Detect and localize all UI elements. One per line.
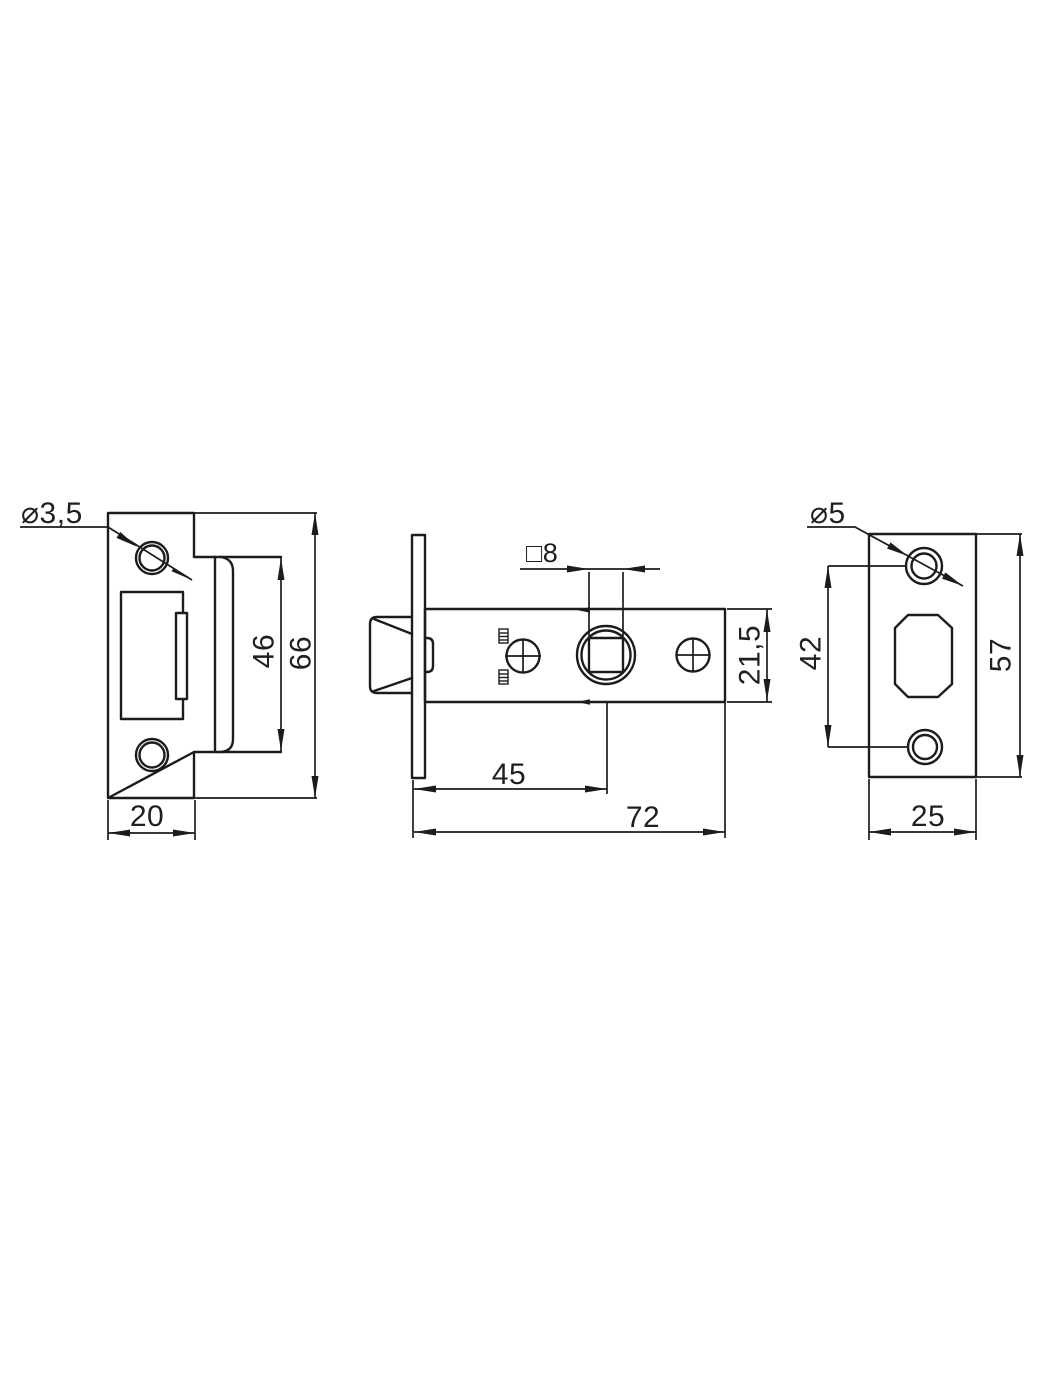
bolt-bevel-top	[374, 619, 412, 634]
faceplate-hole-bottom-inner	[913, 735, 937, 759]
arrow-left	[414, 786, 436, 793]
dim-label-42: 42	[795, 636, 828, 670]
latch-technical-drawing: ⌀3,5 46 66 20	[0, 0, 1050, 1400]
dim-label-hole-dia5: ⌀5	[810, 497, 846, 530]
arrow-left	[567, 566, 589, 573]
arrow-down	[278, 729, 285, 751]
arrow-up	[1017, 534, 1024, 556]
dim-label-46: 46	[248, 634, 281, 668]
arrow-right	[954, 829, 976, 836]
screw-boss-right	[677, 639, 710, 672]
latch-opening-tab	[176, 613, 187, 699]
arrow-up	[312, 513, 319, 535]
latch-body-side-view: □8 21,5 45 72	[370, 535, 772, 838]
dim-label-72: 72	[626, 801, 660, 834]
faceplate-hole-top-inner	[912, 554, 937, 579]
latch-bolt	[370, 617, 412, 693]
arrow-up	[825, 566, 832, 588]
arrow-up	[278, 558, 285, 580]
arrow-right	[173, 830, 195, 837]
spindle-outer-circle	[577, 626, 635, 684]
dim-label-20: 20	[130, 800, 164, 833]
dimension-25: 25	[869, 779, 976, 840]
dimension-21-5: 21,5	[727, 609, 772, 702]
dimension-46: 46	[248, 557, 285, 752]
spindle-square-hole	[589, 638, 623, 672]
dim-label-25: 25	[911, 800, 945, 833]
dim-label-45: 45	[492, 758, 526, 791]
strike-plate-front-view: ⌀3,5 46 66 20	[20, 497, 319, 840]
arrow-left	[869, 829, 891, 836]
dimension-72: 72	[413, 702, 725, 838]
arrow-down	[1017, 755, 1024, 777]
dimension-45: 45	[414, 702, 607, 794]
lip-bend-curve	[221, 557, 233, 752]
strike-screw-hole-bottom-inner	[140, 743, 165, 768]
arrow-right	[703, 829, 725, 836]
leader-end-arrow	[942, 572, 963, 586]
arrow-down	[312, 776, 319, 798]
faceplate-front-view: ⌀5 42 57 25	[795, 497, 1024, 840]
dim-label-66: 66	[285, 636, 318, 670]
strike-screw-hole-bottom-outer	[136, 739, 168, 771]
drawing-canvas: ⌀3,5 46 66 20	[0, 0, 1050, 1400]
spring-detail-top	[499, 629, 508, 643]
dim-label-57: 57	[985, 638, 1018, 672]
spindle-hub	[577, 626, 635, 684]
dimension-hole-dia-5: ⌀5	[807, 497, 963, 586]
arrow-down	[825, 725, 832, 747]
arrow-left	[414, 829, 436, 836]
spring-detail-bottom	[499, 670, 508, 684]
leader-end-arrow	[172, 568, 192, 580]
screw-boss-left	[505, 640, 541, 673]
bolt-bevel-bottom	[374, 678, 412, 691]
dimension-57: 57	[976, 534, 1024, 777]
latch-opening	[121, 592, 183, 719]
dimension-square-8: □8	[520, 538, 660, 636]
faceplate-outline	[869, 534, 976, 777]
arrow-right	[585, 786, 607, 793]
edge-mark-bottom	[577, 699, 590, 705]
dim-label-21-5: 21,5	[734, 625, 767, 685]
faceplate-latch-cutout	[895, 615, 952, 697]
dimension-42: 42	[795, 566, 909, 747]
faceplate-edge	[412, 535, 425, 778]
dim-label-square8: □8	[526, 538, 558, 568]
dimension-20: 20	[108, 800, 195, 840]
leader-arrow	[117, 532, 138, 547]
dim-label-hole-dia: ⌀3,5	[21, 497, 83, 530]
arrow-left	[108, 830, 130, 837]
arrow-right	[623, 566, 645, 573]
leader-arrow	[887, 542, 908, 556]
